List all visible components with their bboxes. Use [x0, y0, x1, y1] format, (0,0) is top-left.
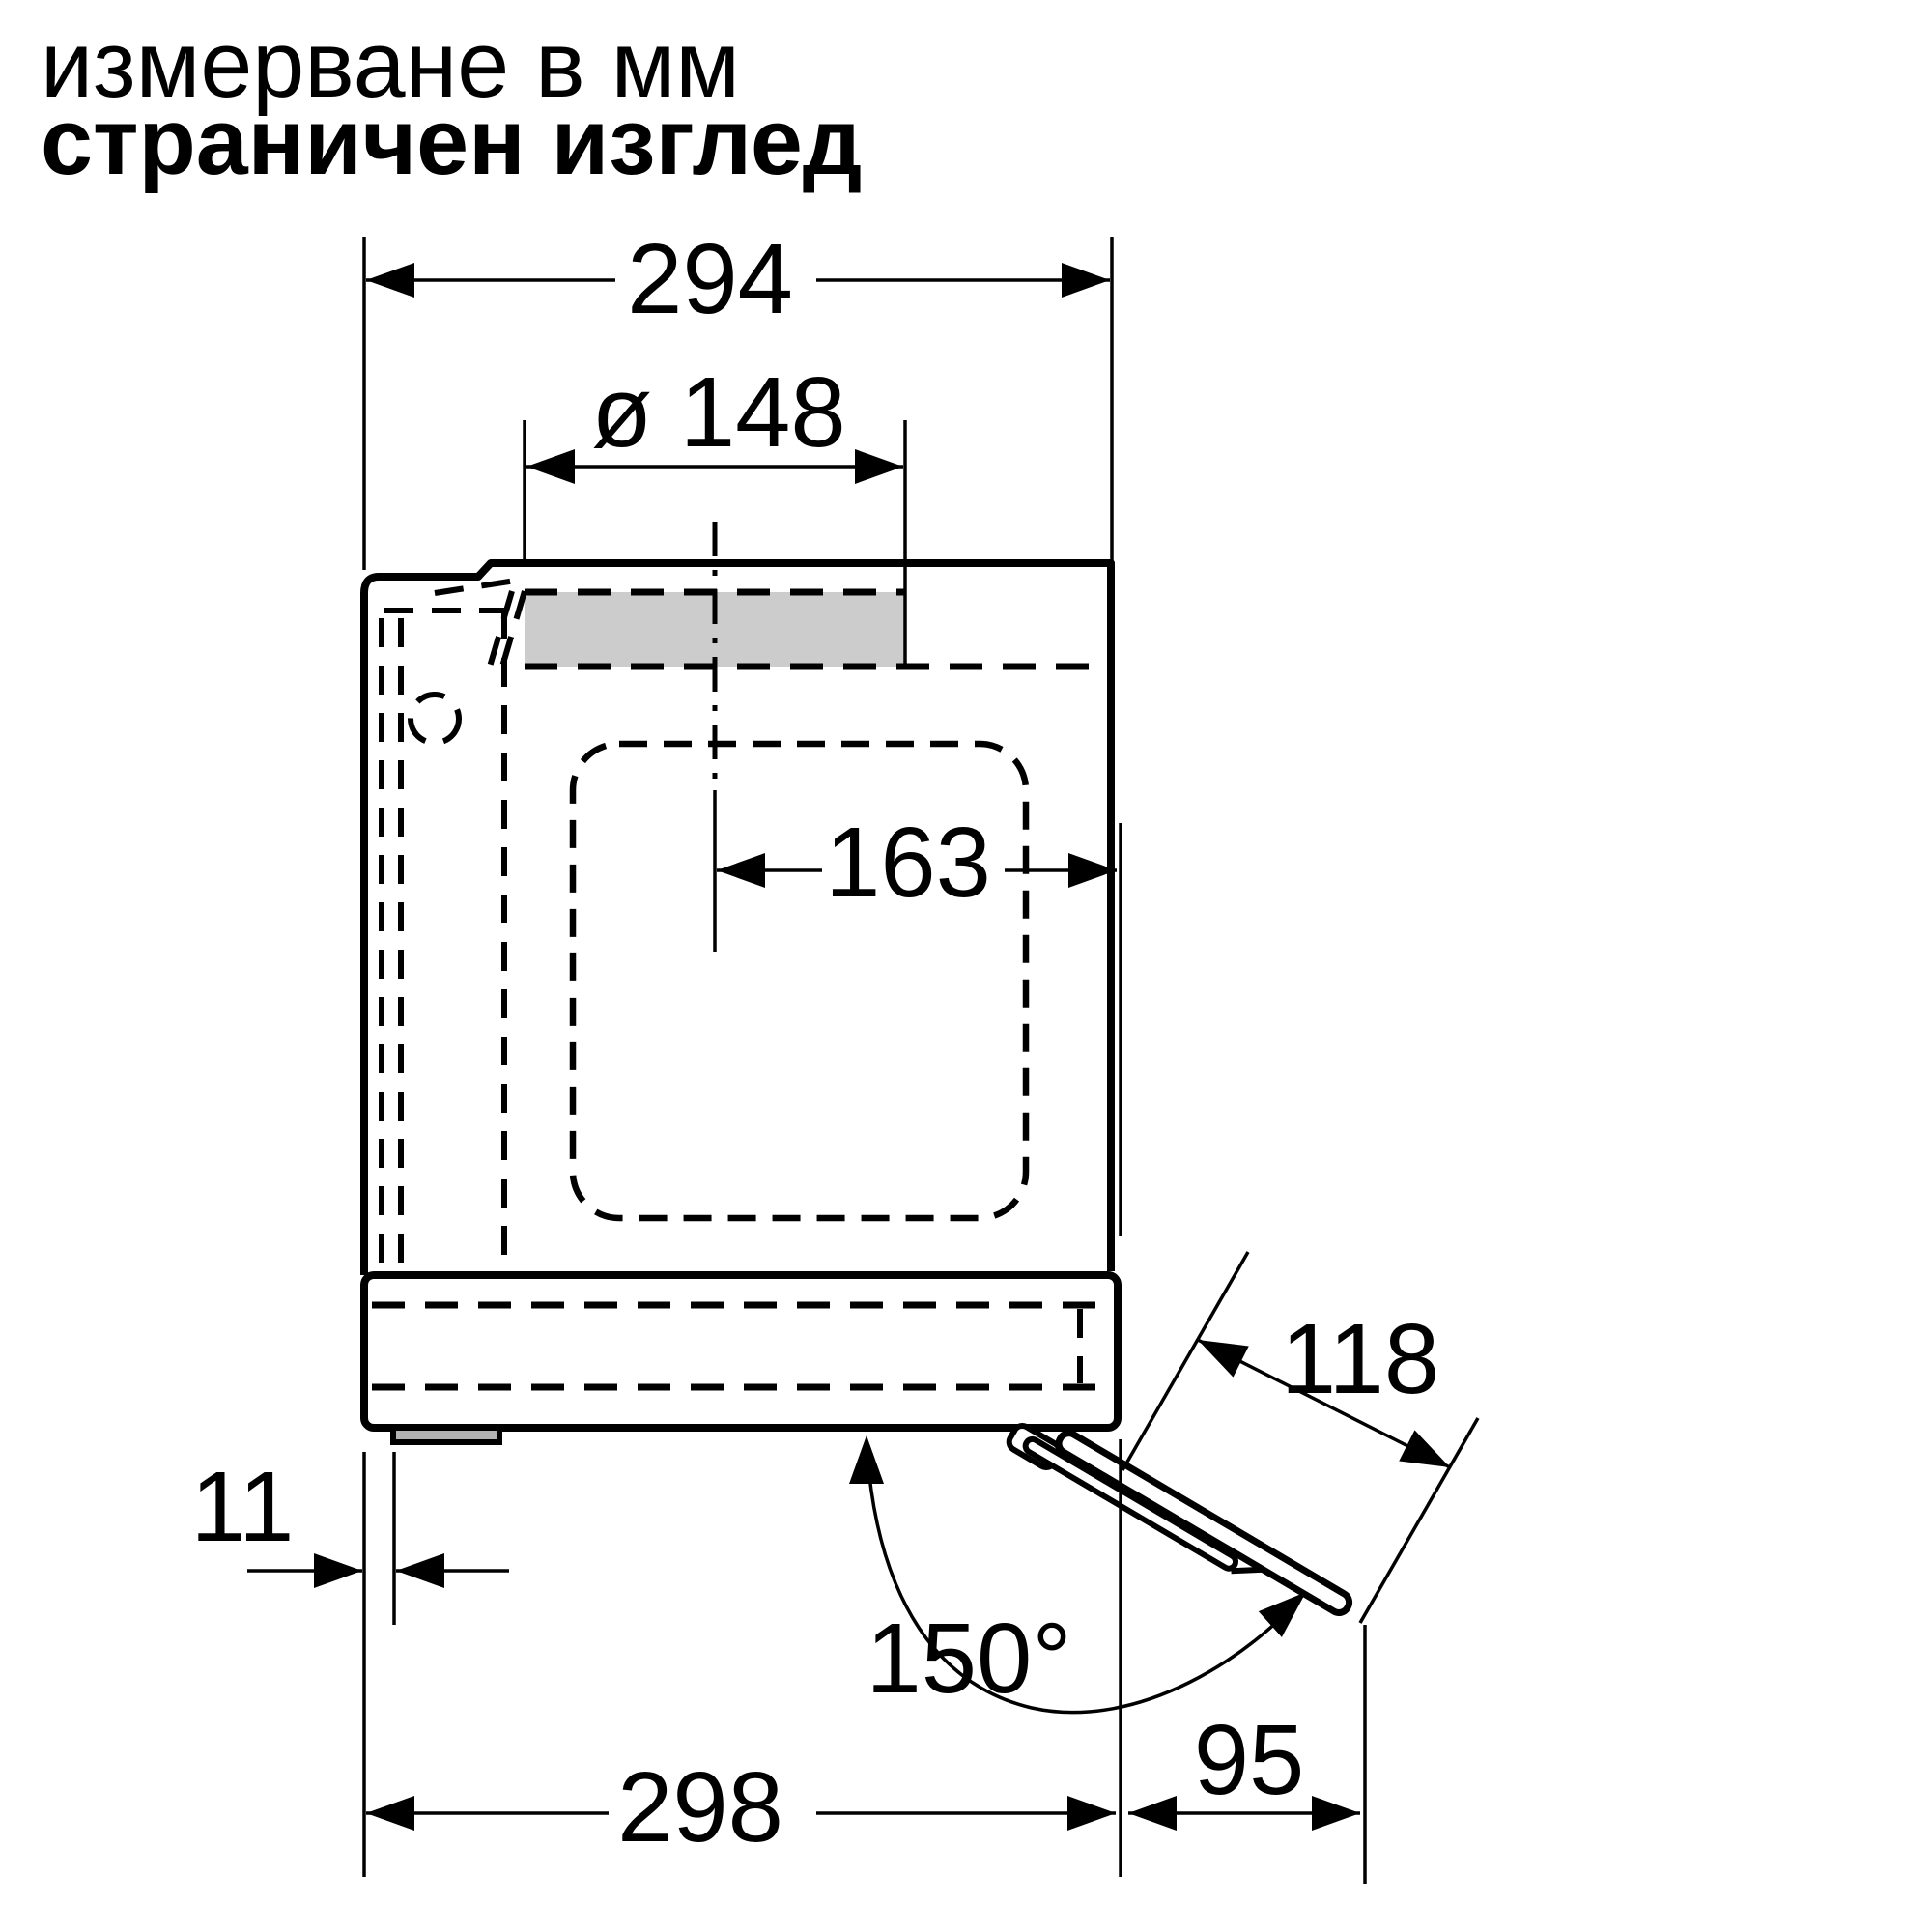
- dim-294-arrow-left: [366, 263, 414, 298]
- dim-95-arrow-left: [1128, 1796, 1177, 1831]
- dim-148-label: ø 148: [591, 356, 845, 468]
- dim-298-label: 298: [617, 1751, 783, 1862]
- dim-95-arrow-right: [1312, 1796, 1360, 1831]
- appliance-body-outline: [364, 563, 1111, 1275]
- dim-11-arrow-right: [396, 1553, 444, 1588]
- dim-118-arrow-upper: [1190, 1324, 1249, 1378]
- dimension-drawing-page: измерване в мм страничен изглед 294: [0, 0, 1932, 1932]
- dim-11-arrow-left: [314, 1553, 362, 1588]
- base-plinth-outline: [364, 1275, 1118, 1428]
- dim-11-label: 11: [191, 1451, 295, 1562]
- dim-148-arrow-right: [855, 449, 903, 484]
- interior-diagonal-dash-top: [435, 580, 522, 593]
- appliance-foot: [393, 1428, 499, 1442]
- dim-294-label: 294: [627, 223, 793, 334]
- dim-118-label: 118: [1281, 1303, 1439, 1414]
- dim-163-arrow-left: [717, 853, 765, 888]
- dim-148-arrow-left: [526, 449, 575, 484]
- door-angle-arrow-top: [849, 1435, 884, 1484]
- door-angle-label: 150°: [866, 1603, 1071, 1714]
- dim-298-arrow-left: [366, 1796, 414, 1831]
- dim-294-arrow-right: [1062, 263, 1110, 298]
- dim-95-label: 95: [1194, 1704, 1305, 1815]
- dim-298-arrow-right: [1067, 1796, 1116, 1831]
- door-outer-panel: [1055, 1430, 1352, 1616]
- view-name-label: страничен изглед: [41, 89, 862, 194]
- side-view-technical-drawing: измерване в мм страничен изглед 294: [0, 0, 1932, 1932]
- dim-163-label: 163: [825, 807, 991, 918]
- dim-118-arrow-lower: [1399, 1430, 1458, 1483]
- interior-dashed-circle: [411, 695, 459, 743]
